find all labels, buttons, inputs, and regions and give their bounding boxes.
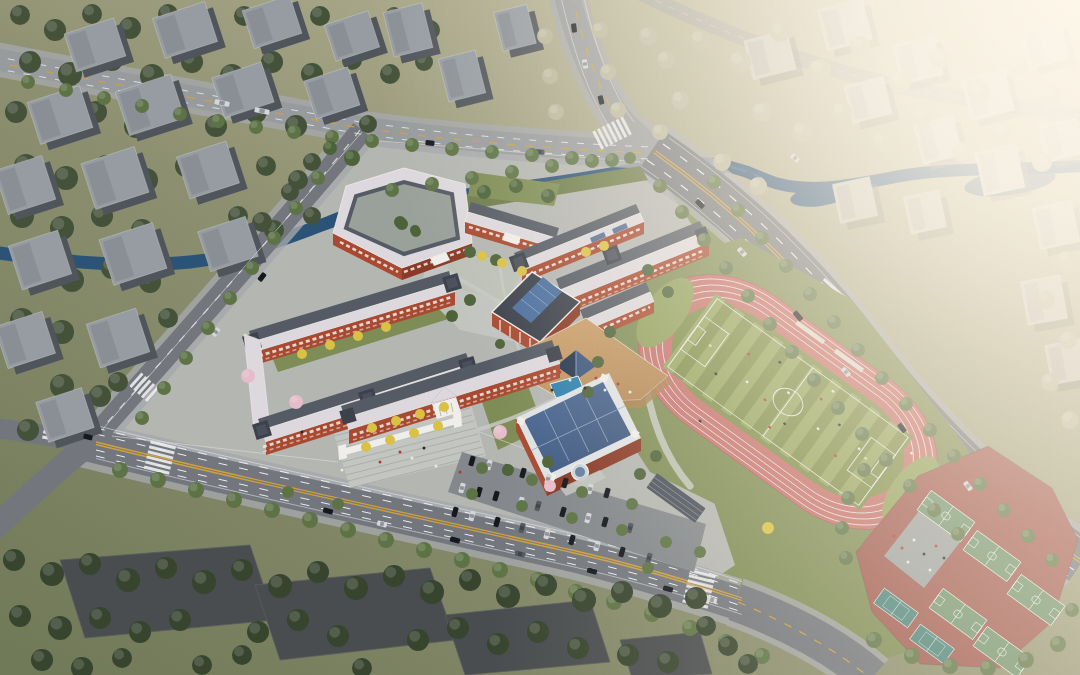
aerial-render	[0, 0, 1080, 675]
aerial-render-canvas	[0, 0, 1080, 675]
sun-glare	[0, 0, 1080, 675]
